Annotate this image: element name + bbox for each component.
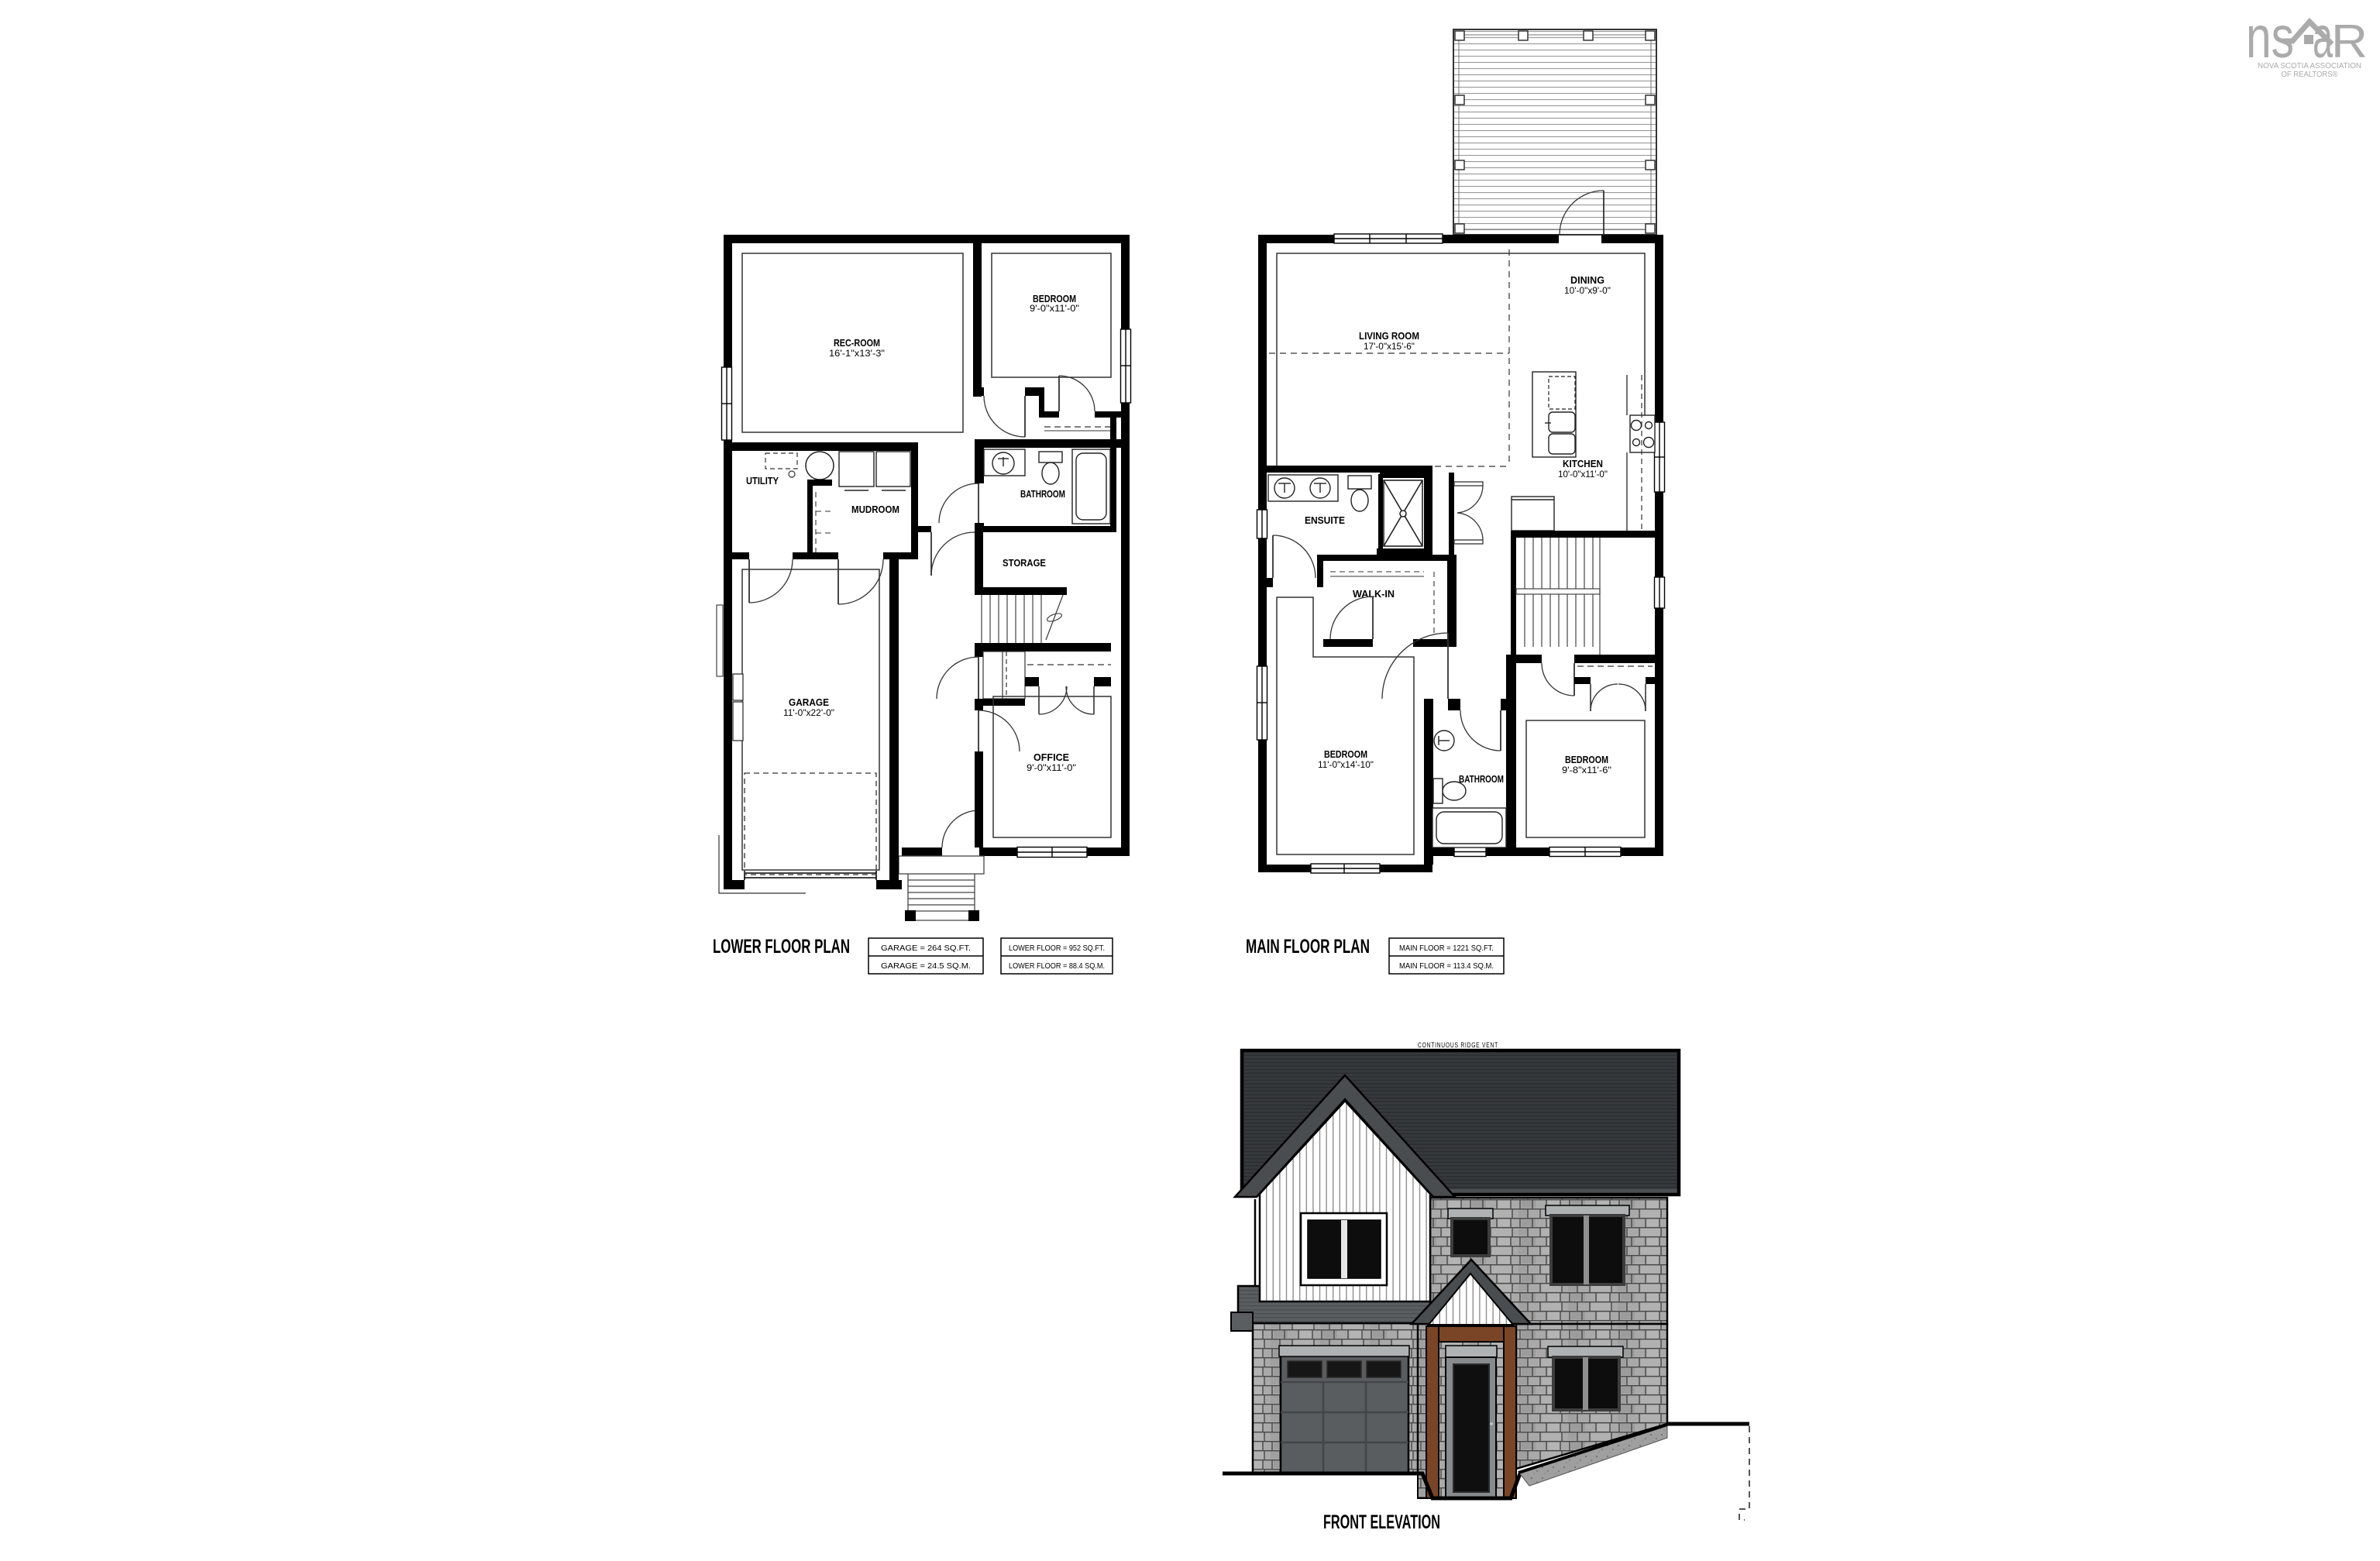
- svg-text:GARAGE: GARAGE: [789, 696, 829, 708]
- svg-text:9'-0"x11'-0": 9'-0"x11'-0": [1027, 764, 1076, 773]
- svg-text:STORAGE: STORAGE: [1003, 557, 1046, 569]
- svg-text:BEDROOM: BEDROOM: [1324, 748, 1367, 760]
- svg-text:LIVING ROOM: LIVING ROOM: [1359, 330, 1419, 342]
- svg-text:BATHROOM: BATHROOM: [1020, 488, 1065, 500]
- svg-text:LOWER FLOOR = 952 SQ.FT.: LOWER FLOOR = 952 SQ.FT.: [1009, 944, 1105, 953]
- svg-text:GARAGE = 24.5 SQ.M.: GARAGE = 24.5 SQ.M.: [881, 961, 971, 971]
- svg-text:BEDROOM: BEDROOM: [1033, 293, 1076, 304]
- svg-text:17'-0"x15'-6": 17'-0"x15'-6": [1364, 342, 1415, 352]
- svg-text:9'-0"x11'-0": 9'-0"x11'-0": [1030, 304, 1079, 314]
- svg-text:11'-0"x22'-0": 11'-0"x22'-0": [783, 709, 834, 718]
- svg-text:LOWER FLOOR = 88.4 SQ.M.: LOWER FLOOR = 88.4 SQ.M.: [1009, 961, 1105, 971]
- svg-text:UTILITY: UTILITY: [746, 475, 779, 487]
- svg-text:BEDROOM: BEDROOM: [1565, 754, 1608, 765]
- svg-text:16'-1"x13'-3": 16'-1"x13'-3": [829, 349, 885, 359]
- svg-text:LOWER FLOOR PLAN: LOWER FLOOR PLAN: [713, 936, 850, 958]
- svg-text:ns: ns: [2246, 5, 2294, 70]
- svg-text:BATHROOM: BATHROOM: [1459, 773, 1504, 785]
- svg-text:NOVA SCOTIA ASSOCIATION: NOVA SCOTIA ASSOCIATION: [2258, 62, 2361, 70]
- svg-text:MUDROOM: MUDROOM: [851, 504, 899, 515]
- svg-text:R: R: [2331, 15, 2368, 67]
- svg-text:9'-8"x11'-6": 9'-8"x11'-6": [1562, 766, 1611, 775]
- svg-text:CONTINUOUS RIDGE VENT: CONTINUOUS RIDGE VENT: [1418, 1041, 1498, 1049]
- svg-text:ENSUITE: ENSUITE: [1305, 514, 1345, 526]
- svg-text:10'-0"x11'-0": 10'-0"x11'-0": [1558, 470, 1608, 480]
- svg-text:GARAGE = 264 SQ.FT.: GARAGE = 264 SQ.FT.: [881, 944, 971, 953]
- svg-text:MAIN FLOOR = 1221 SQ.FT.: MAIN FLOOR = 1221 SQ.FT.: [1399, 944, 1494, 953]
- svg-text:11'-0"x14'-10": 11'-0"x14'-10": [1318, 761, 1374, 770]
- svg-text:DINING: DINING: [1570, 274, 1604, 286]
- svg-text:FRONT ELEVATION: FRONT ELEVATION: [1323, 1511, 1440, 1533]
- svg-text:OF REALTORS®: OF REALTORS®: [2282, 70, 2339, 79]
- svg-text:a: a: [2313, 5, 2333, 70]
- svg-text:10'-0"x9'-0": 10'-0"x9'-0": [1564, 287, 1611, 296]
- svg-text:MAIN FLOOR = 113.4 SQ.M.: MAIN FLOOR = 113.4 SQ.M.: [1399, 961, 1494, 971]
- svg-text:MAIN FLOOR PLAN: MAIN FLOOR PLAN: [1246, 936, 1370, 958]
- svg-text:KITCHEN: KITCHEN: [1563, 458, 1603, 469]
- svg-text:REC-ROOM: REC-ROOM: [834, 337, 880, 349]
- svg-text:WALK-IN: WALK-IN: [1353, 588, 1395, 600]
- svg-text:OFFICE: OFFICE: [1034, 751, 1069, 763]
